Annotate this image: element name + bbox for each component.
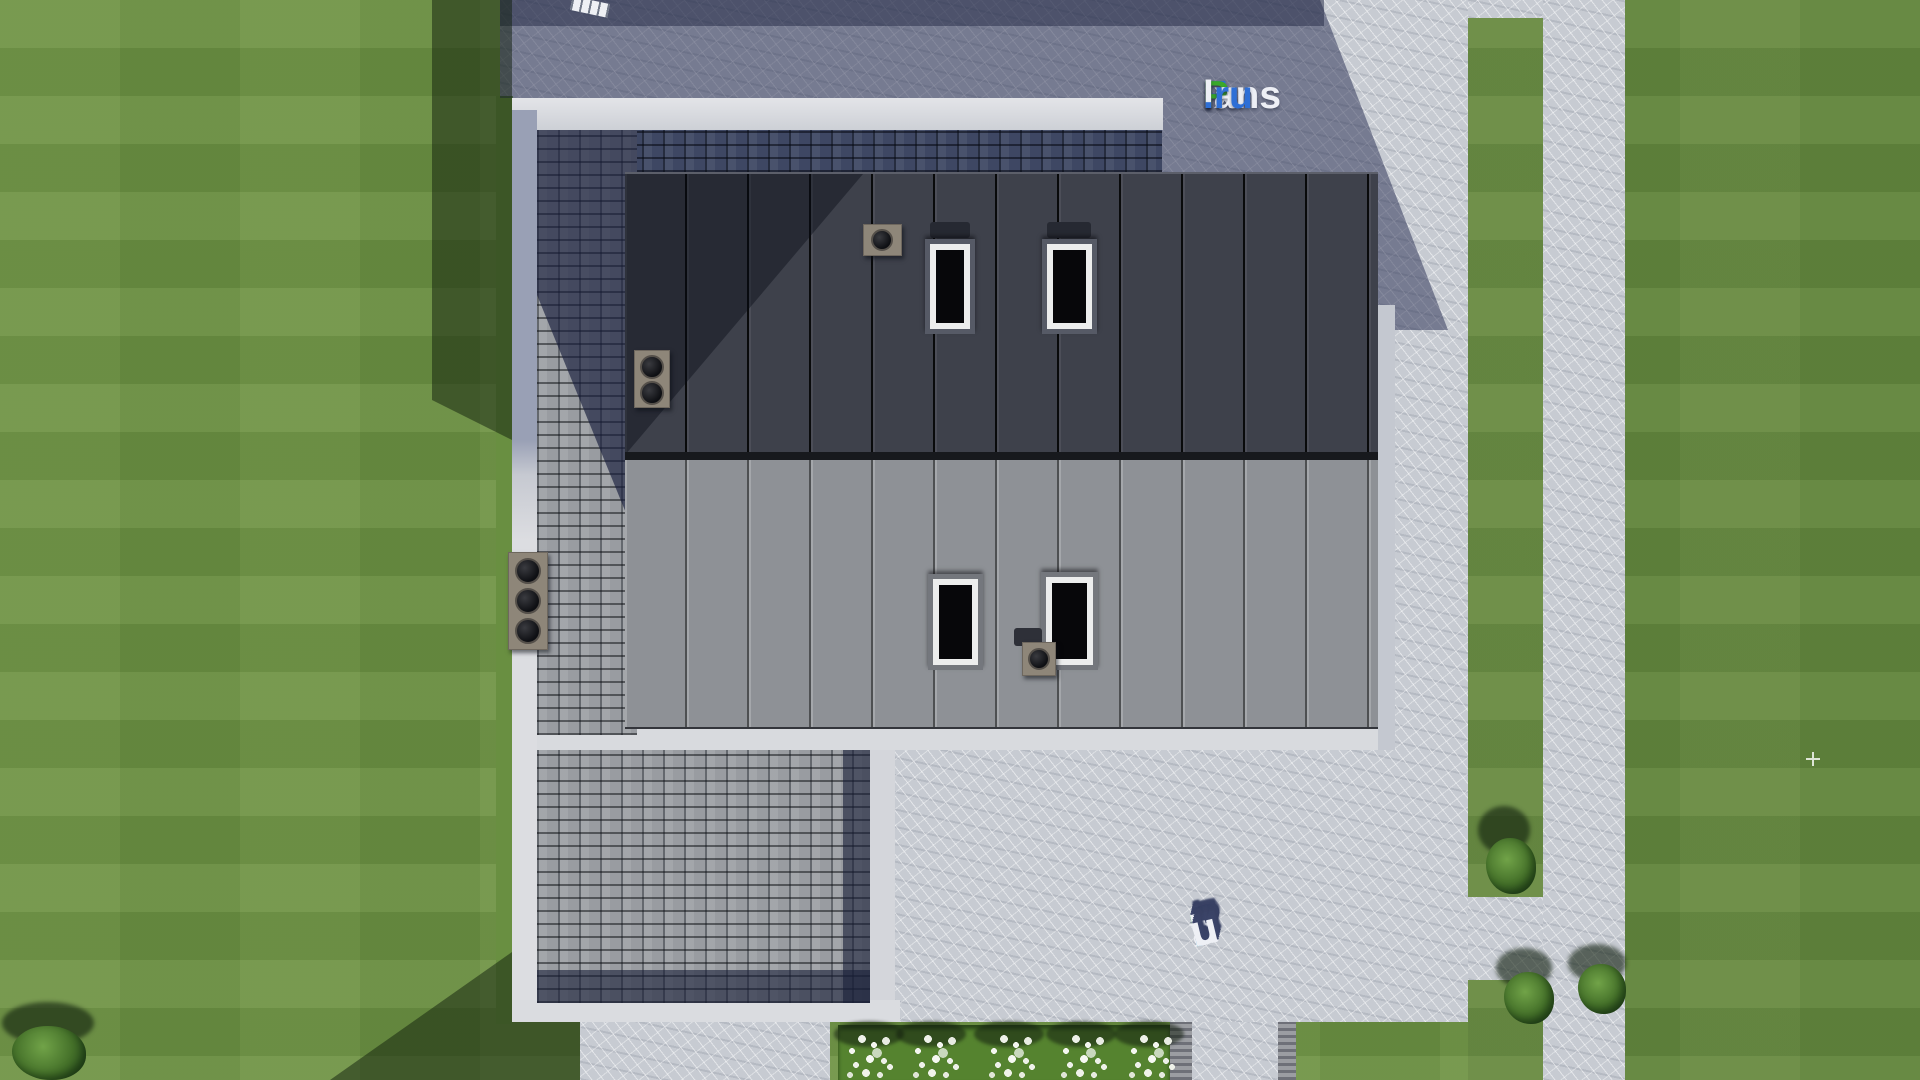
skylight-glass <box>1053 250 1086 323</box>
watermark-part: .ru <box>1203 76 1253 115</box>
skylight-curb <box>930 222 970 238</box>
skylight-glass <box>1052 583 1087 659</box>
roof-upper-shadow <box>625 174 1378 454</box>
wing-shadow-right <box>843 750 870 1003</box>
roof-vent-double <box>634 350 670 408</box>
flower-bed <box>838 1025 1170 1080</box>
roof-gap-line <box>625 452 1378 460</box>
skylight-3 <box>928 574 983 670</box>
lawn-sparkle <box>1806 752 1820 766</box>
parapet-wing-right <box>868 750 895 1022</box>
wall-vent-triple <box>508 552 548 650</box>
vent-pipe <box>515 558 541 584</box>
aerial-render-canvas: FixPlans.ru FixPlans.ru <box>0 0 1920 1080</box>
white-flower-cluster <box>1058 1031 1110 1080</box>
parapet-right <box>1378 305 1395 750</box>
skylight-2 <box>1042 239 1097 334</box>
roof-vent-top <box>863 224 902 256</box>
sparkle-bar <box>1806 758 1820 760</box>
vent-pipe <box>515 618 541 644</box>
bush <box>1486 838 1536 894</box>
shingle-roof-left-strip <box>537 130 637 735</box>
skylight-curb <box>1047 222 1091 238</box>
shingle-roof-south-wing <box>537 750 870 1003</box>
parapet-top <box>512 98 1163 130</box>
roof-upper-dark <box>625 172 1378 454</box>
vent-pipe <box>640 381 664 405</box>
roof-lower-light <box>625 460 1378 729</box>
white-flower-cluster <box>910 1031 962 1080</box>
vent-pipe <box>1028 648 1050 670</box>
wing-shadow-bottom <box>537 970 870 1003</box>
stone-curb-right <box>1278 1022 1296 1080</box>
roof-vent-small <box>1022 642 1056 676</box>
parapet-roof-bottom <box>537 729 1378 750</box>
vent-pipe <box>515 588 541 614</box>
right-garden-path <box>1543 0 1625 1080</box>
white-flower-cluster <box>986 1031 1038 1080</box>
bush <box>1504 972 1554 1024</box>
white-flower-cluster <box>844 1031 896 1080</box>
parapet-wing-bottom <box>512 1000 900 1022</box>
bush <box>1578 964 1626 1014</box>
shingle-texture <box>537 750 870 1003</box>
terrace-top-dark-strip <box>500 0 1324 26</box>
bottom-walkway <box>580 1022 830 1080</box>
white-flower-cluster <box>1126 1031 1178 1080</box>
bottom-path <box>1192 1022 1278 1080</box>
bush <box>12 1026 86 1080</box>
skylight-glass <box>936 250 964 323</box>
vent-pipe <box>871 229 893 251</box>
skylight-1 <box>925 239 975 334</box>
skylight-glass <box>939 585 972 659</box>
vent-pipe <box>640 355 664 379</box>
